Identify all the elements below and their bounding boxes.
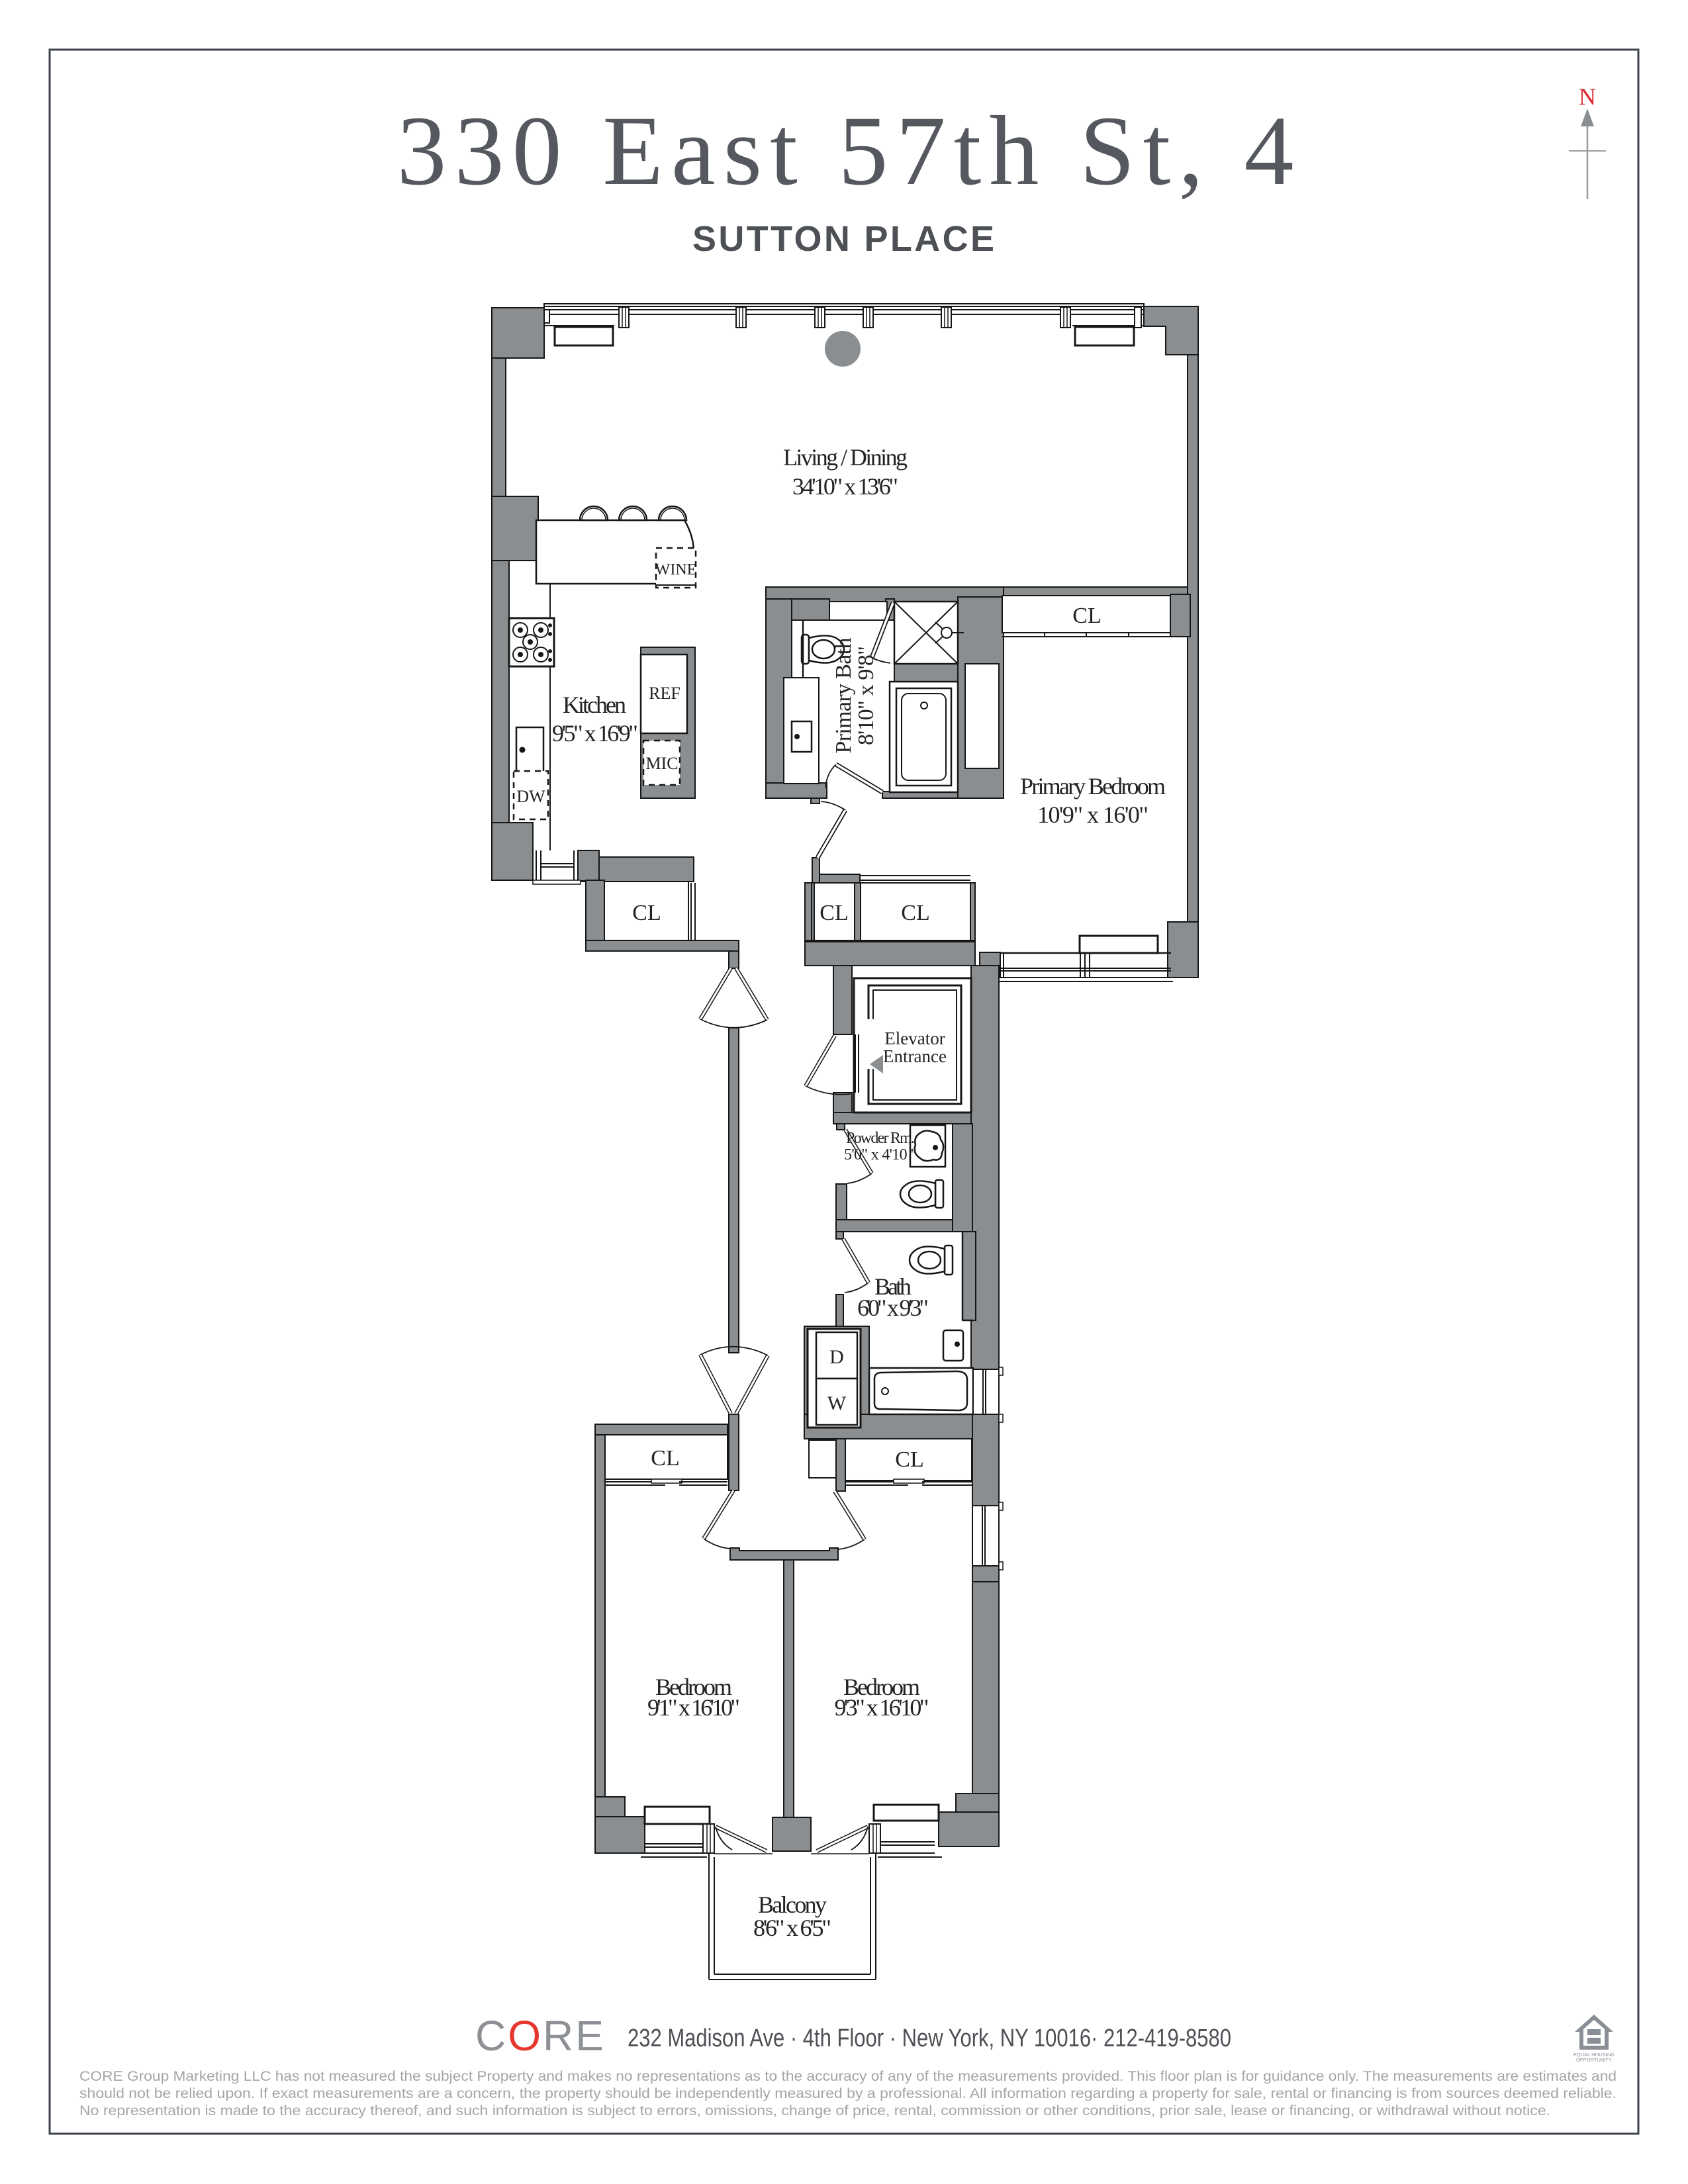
svg-text:9'3" x 16'10": 9'3" x 16'10"	[835, 1694, 929, 1721]
svg-text:N: N	[1579, 83, 1596, 110]
svg-text:Kitchen: Kitchen	[563, 692, 626, 718]
svg-text:Primary Bath: Primary Bath	[831, 638, 856, 754]
svg-text:10'9" x 16'0": 10'9" x 16'0"	[1037, 801, 1149, 828]
svg-text:Entrance: Entrance	[883, 1046, 947, 1066]
svg-text:D: D	[829, 1346, 844, 1368]
svg-text:WINE: WINE	[655, 561, 697, 578]
svg-text:CL: CL	[1072, 604, 1101, 628]
svg-text:CL: CL	[651, 1446, 679, 1471]
svg-text:Elevator: Elevator	[884, 1028, 945, 1048]
svg-text:CL: CL	[820, 901, 848, 925]
svg-text:34'10" x 13'6": 34'10" x 13'6"	[792, 473, 898, 500]
svg-text:should not be relied upon. If: should not be relied upon. If exact meas…	[79, 2085, 1617, 2101]
svg-text:9'1" x 16'10": 9'1" x 16'10"	[647, 1694, 740, 1721]
svg-text:CL: CL	[632, 901, 661, 925]
svg-text:DW: DW	[516, 787, 545, 806]
svg-text:8'10" x 9'8": 8'10" x 9'8"	[854, 646, 878, 745]
svg-text:CL: CL	[901, 901, 929, 925]
svg-text:9'5" x 16'9": 9'5" x 16'9"	[552, 720, 638, 747]
svg-text:Primary Bedroom: Primary Bedroom	[1020, 773, 1166, 799]
svg-text:Balcony: Balcony	[758, 1891, 827, 1918]
svg-text:W: W	[827, 1392, 847, 1414]
svg-text:OPPORTUNITY: OPPORTUNITY	[1576, 2057, 1612, 2063]
svg-text:232 Madison Ave · 4th Floor ·: 232 Madison Ave · 4th Floor · New York, …	[628, 2025, 1231, 2052]
svg-text:5'0" x 4'10 ": 5'0" x 4'10 "	[844, 1146, 917, 1163]
svg-text:No representation is made to t: No representation is made to the accurac…	[79, 2103, 1550, 2118]
svg-text:CL: CL	[895, 1447, 923, 1472]
svg-text:6'0" x 9'3": 6'0" x 9'3"	[857, 1295, 929, 1321]
svg-text:CORE: CORE	[475, 2012, 606, 2060]
svg-text:SUTTON PLACE: SUTTON PLACE	[692, 219, 998, 259]
svg-text:8'6" x 6'5": 8'6" x 6'5"	[753, 1915, 831, 1941]
svg-text:Powder Rm.: Powder Rm.	[846, 1130, 915, 1147]
svg-text:330 East 57th St, 4: 330 East 57th St, 4	[397, 96, 1294, 206]
svg-text:Living / Dining: Living / Dining	[783, 444, 908, 471]
svg-text:REF: REF	[649, 684, 680, 703]
svg-text:CORE Group Marketing LLC has n: CORE Group Marketing LLC has not measure…	[79, 2068, 1617, 2084]
svg-text:MIC: MIC	[645, 754, 678, 773]
